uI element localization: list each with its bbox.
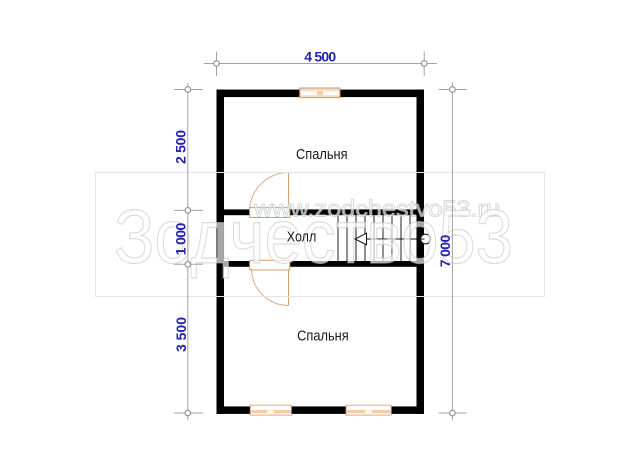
svg-text:3 500: 3 500 [173, 317, 189, 352]
svg-text:Спальня: Спальня [296, 146, 348, 163]
svg-text:Холл: Холл [287, 229, 317, 246]
svg-text:7 000: 7 000 [437, 235, 453, 268]
svg-text:1 000: 1 000 [173, 223, 189, 256]
svg-text:Спальня: Спальня [297, 328, 349, 345]
svg-text:4 500: 4 500 [304, 49, 336, 65]
svg-text:2 500: 2 500 [173, 130, 189, 164]
